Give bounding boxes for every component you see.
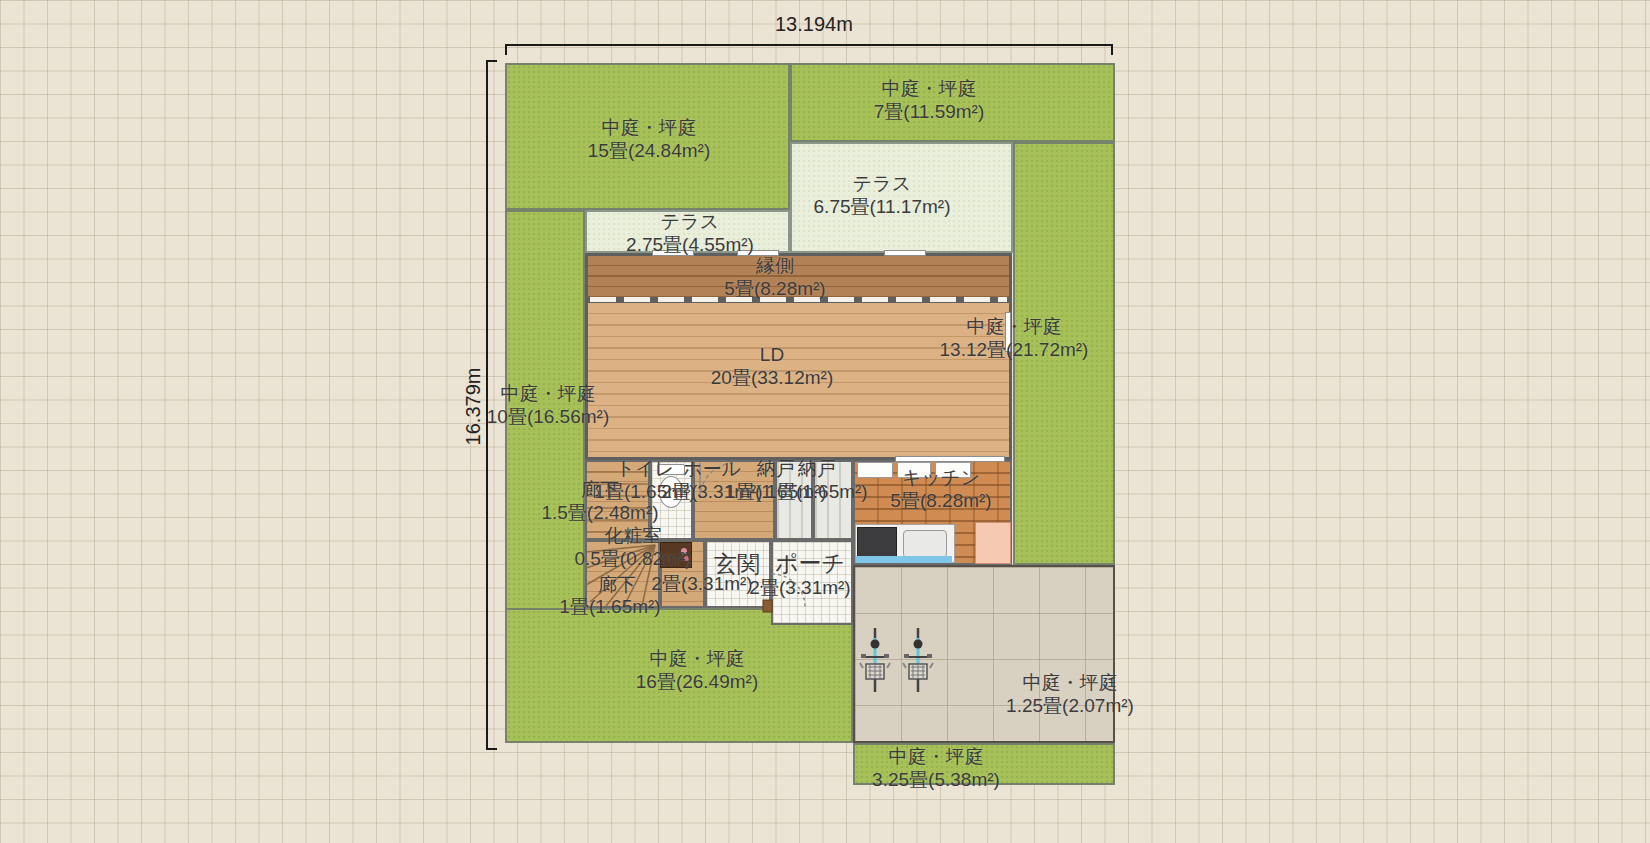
top-dimension-line — [505, 44, 1113, 46]
left-dimension-tick-bottom — [486, 748, 497, 750]
engawa-label: 縁側5畳(8.28m²) — [724, 254, 825, 300]
floorplan-canvas: 13.194m 16.379m — [0, 0, 1650, 843]
porch-name-label: ポーチ — [775, 550, 845, 576]
garden-15-label: 中庭・坪庭15畳(24.84m²) — [588, 116, 711, 162]
kitchen-label: キッチン5畳(8.28m²) — [890, 466, 991, 512]
corridor-b-name-label: 廊下 — [598, 573, 636, 596]
terrace-275-label: テラス2.75畳(4.55m²) — [626, 210, 754, 256]
bicycle-icon[interactable] — [860, 628, 890, 692]
corridor-a-label: 廊下1.5畳(2.48m²) — [541, 478, 658, 524]
left-dimension-line — [486, 60, 488, 750]
garden-10-label: 中庭・坪庭10畳(16.56m²) — [487, 382, 610, 428]
top-dimension-tick-left — [505, 44, 507, 55]
bicycle-icon[interactable] — [903, 628, 933, 692]
terrace-675-label: テラス6.75畳(11.17m²) — [814, 172, 951, 218]
corridor-b-area-label: 1畳(1.65m²) — [559, 595, 660, 618]
top-dimension-label: 13.194m — [775, 13, 853, 36]
top-dimension-tick-right — [1111, 44, 1113, 55]
ld-label: LD20畳(33.12m²) — [711, 343, 834, 389]
garden-125-label: 中庭・坪庭1.25畳(2.07m²) — [1006, 671, 1134, 717]
storage-b-label: 納戸1畳(1.65m²) — [766, 457, 867, 503]
left-dimension-tick-top — [486, 60, 497, 62]
plan-overlay — [0, 0, 1650, 843]
garden-16-label: 中庭・坪庭16畳(26.49m²) — [636, 647, 759, 693]
entrance-area-label: 2畳(3.31m²) — [651, 572, 752, 595]
garden-1312-label: 中庭・坪庭13.12畳(21.72m²) — [940, 315, 1089, 361]
powder-label: 化粧室0.5畳(0.82m²) — [574, 524, 691, 570]
left-dimension-label: 16.379m — [462, 362, 485, 452]
garden-7-label: 中庭・坪庭7畳(11.59m²) — [874, 77, 985, 123]
porch-area-label: 2畳(3.31m²) — [749, 576, 850, 599]
door-threshold — [763, 600, 772, 612]
garden-325-label: 中庭・坪庭3.25畳(5.38m²) — [872, 745, 1000, 791]
